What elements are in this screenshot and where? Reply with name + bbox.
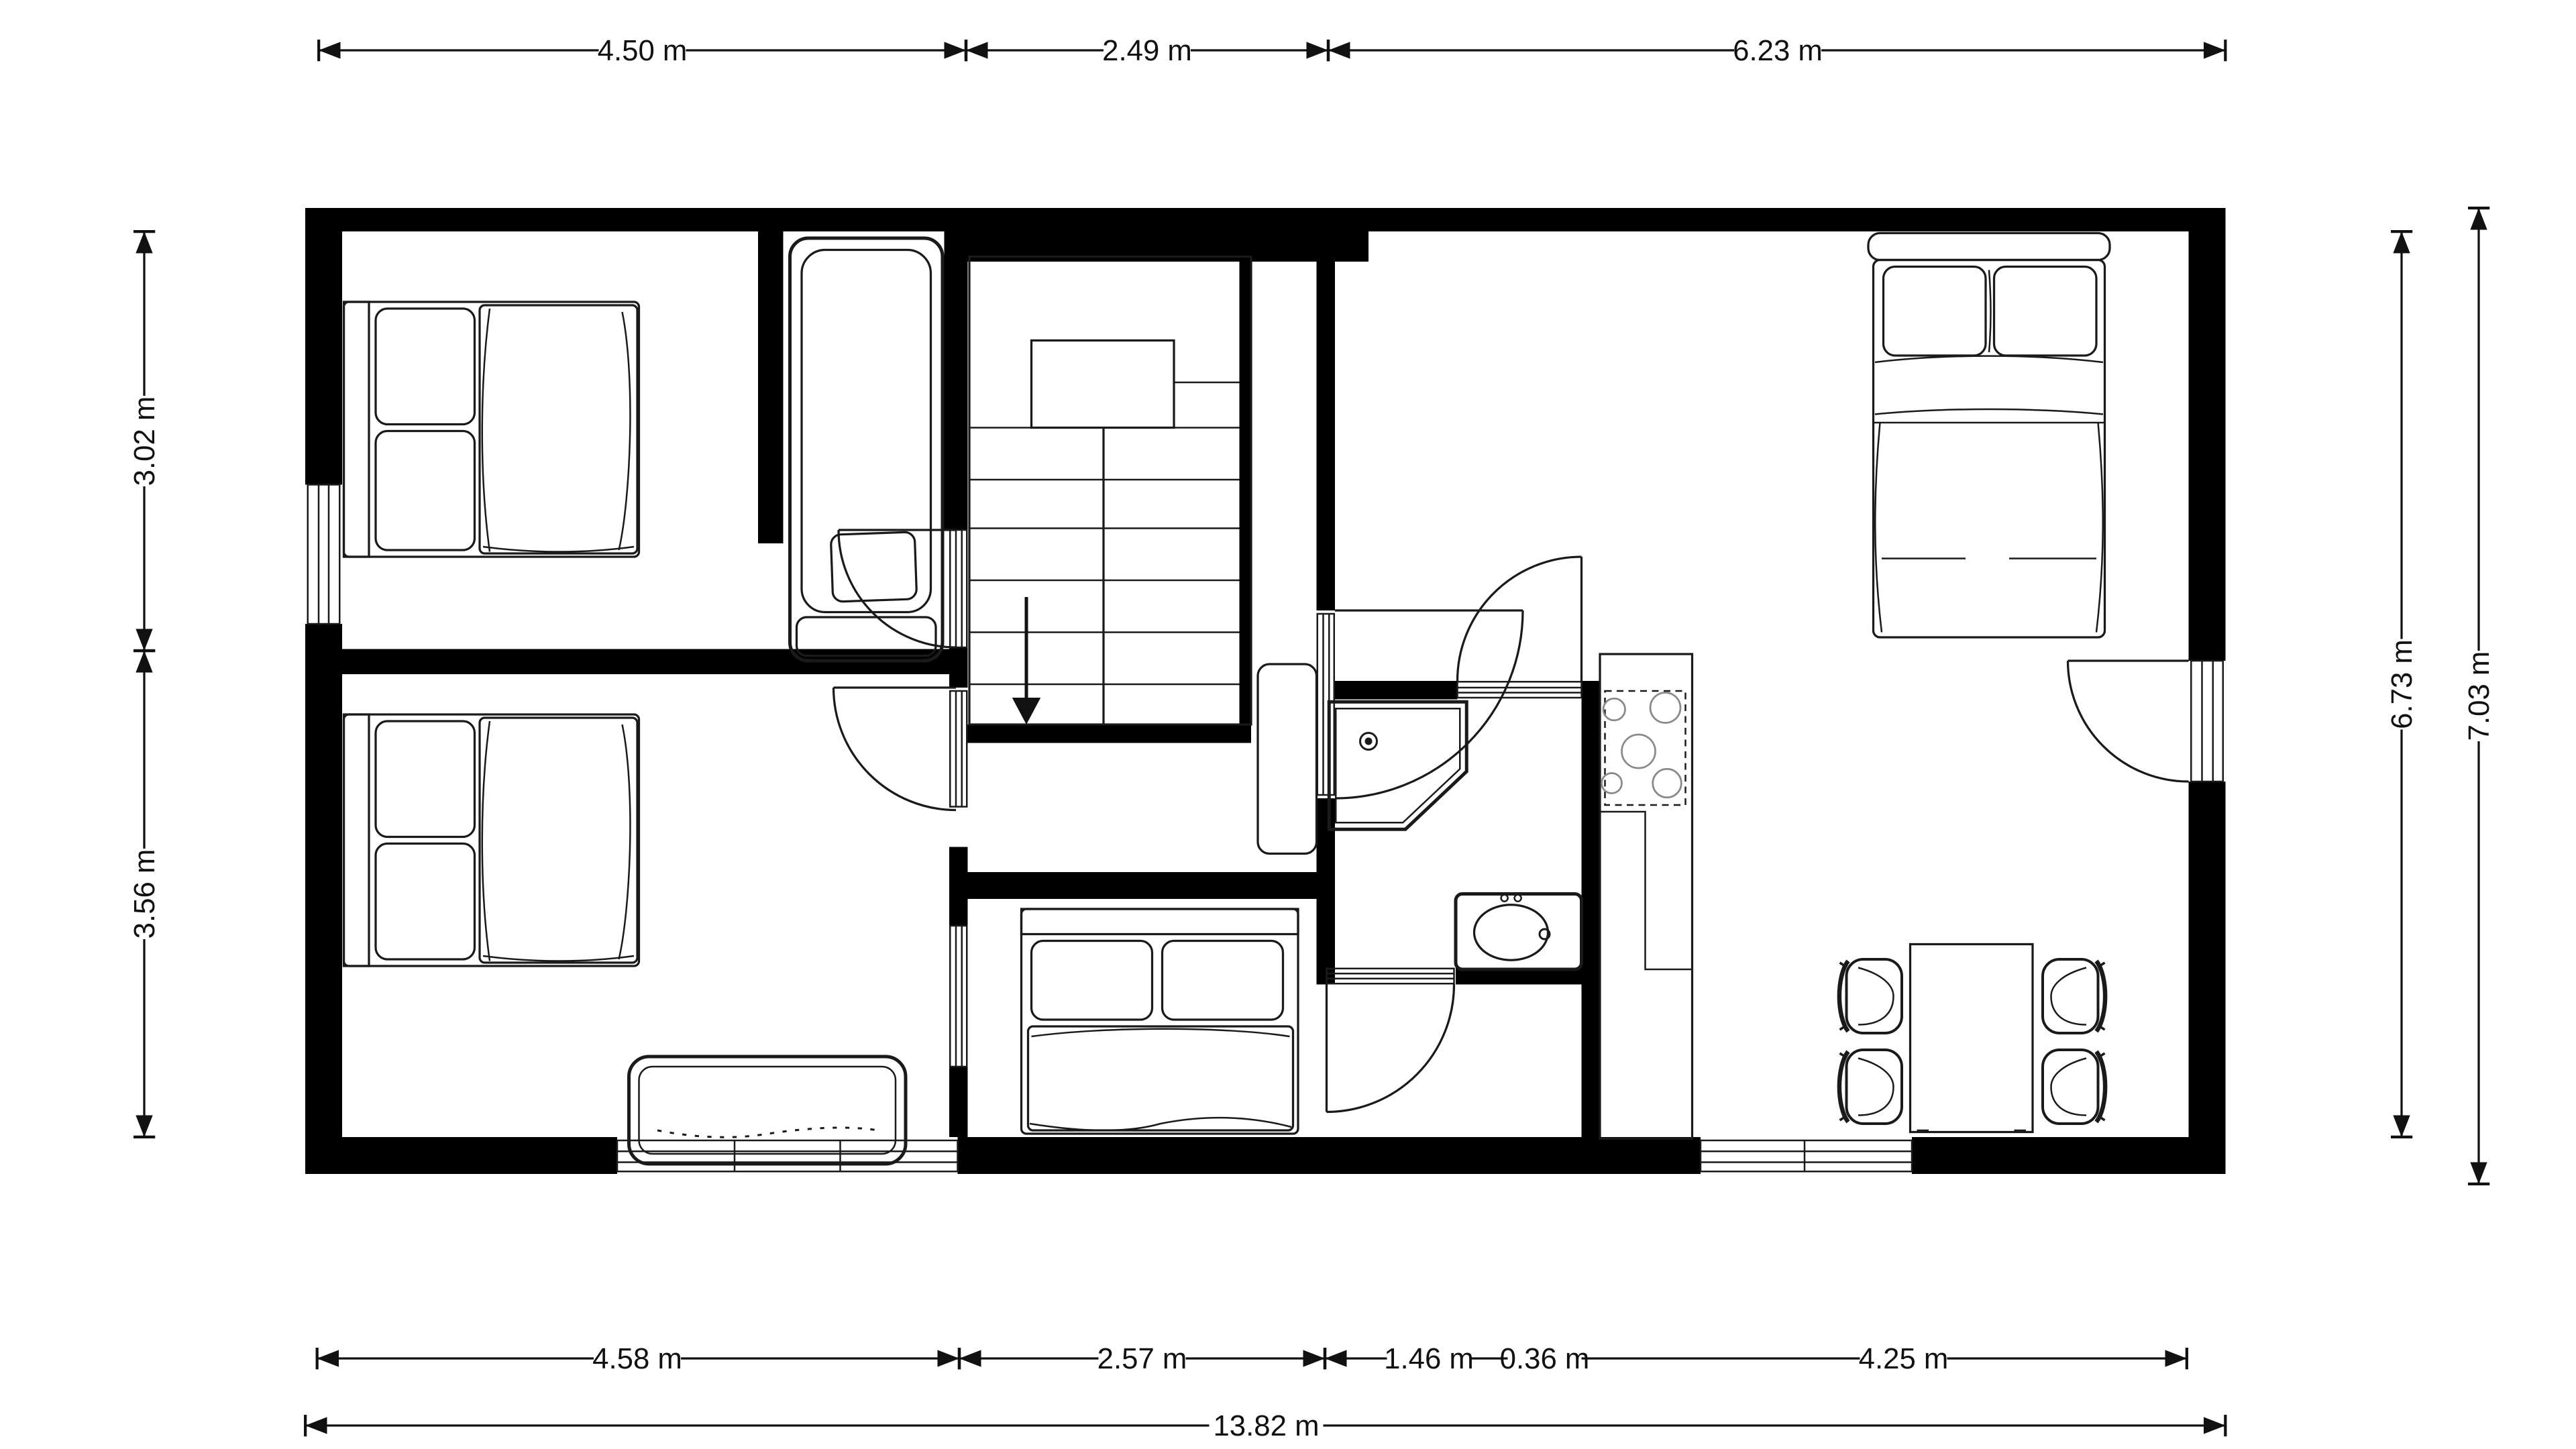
floor-plan-canvas: 4.50 m 2.49 m 6.23 m 3.02 m 3.56 m 6.73 … (0, 0, 2576, 1449)
wall-tubroom-right (945, 208, 968, 530)
bed-3 (1022, 909, 1299, 1134)
dim-left-1: 3.02 m (128, 396, 161, 486)
wall-bed3-left-upper (949, 899, 968, 926)
dim-overall-width: 13.82 m (1213, 1409, 1319, 1442)
dining-chairs (1839, 959, 2105, 1124)
chair-bottom-left (1839, 1050, 1902, 1124)
kitchen-counter (1600, 654, 1693, 1139)
dim-right-outer: 7.03 m (2463, 651, 2495, 741)
doors (834, 530, 2226, 1112)
wardrobe (1258, 664, 1317, 854)
windows (305, 485, 1912, 1175)
door-bedroom-2 (834, 688, 967, 810)
dim-right-inner: 6.73 m (2385, 639, 2418, 729)
wall-left-lower (305, 624, 342, 1174)
chair-top-right (2043, 959, 2105, 1033)
window-bottom-right (1701, 1137, 1912, 1174)
wall-bath-right (1582, 681, 1601, 1137)
wall-stair-bottom (968, 724, 1252, 743)
dim-top-2: 2.49 m (1102, 34, 1192, 67)
wall-bottom (305, 1137, 2226, 1174)
dim-bottom-4: 0.36 m (1500, 1342, 1590, 1375)
shower-drain-icon (1365, 738, 1373, 745)
wall-b-horizontal (968, 872, 1336, 899)
door-tub-room (839, 530, 967, 647)
wall-bath-top (1335, 681, 1458, 700)
dim-top-3: 6.23 m (1733, 34, 1823, 67)
wall-middle-lower (1317, 798, 1336, 985)
wall-block-b (949, 847, 968, 900)
dim-bottom-1: 4.58 m (592, 1342, 682, 1375)
washbasin (1456, 894, 1582, 970)
dining-table (1911, 945, 2033, 1132)
staircase (969, 257, 1251, 725)
door-bedroom-3-opening (950, 926, 967, 1067)
cooktop (1602, 691, 1686, 805)
bed-4-double (1868, 233, 2110, 638)
wall-top (305, 208, 2226, 231)
window-left (305, 485, 342, 625)
wall-right-lower (2189, 782, 2226, 1174)
chair-bottom-right (2043, 1050, 2105, 1124)
bed-2 (344, 714, 639, 966)
dim-bottom-3: 1.46 m (1384, 1342, 1474, 1375)
chair-top-left (1839, 959, 1902, 1033)
dim-bottom-2: 2.57 m (1097, 1342, 1187, 1375)
dim-top-1: 4.50 m (598, 34, 688, 67)
dim-bottom-5: 4.25 m (1859, 1342, 1949, 1375)
door-bathroom-bottom (1327, 969, 1454, 1112)
wall-stair-right (1240, 257, 1252, 725)
door-bathroom-top (1458, 557, 1582, 698)
wall-right-upper (2189, 208, 2226, 661)
corner-shower (1329, 702, 1466, 829)
door-hall-living (1318, 610, 1523, 798)
wall-left-upper (305, 208, 342, 485)
bathtub (790, 238, 943, 661)
wall-bed3-left-lower (949, 1067, 968, 1137)
stairs-down-arrow-icon (1012, 597, 1041, 724)
door-balcony (2068, 661, 2226, 782)
wall-bed1-partition (758, 208, 784, 543)
walls (305, 208, 2226, 1174)
floor-plan-drawing: 4.50 m 2.49 m 6.23 m 3.02 m 3.56 m 6.73 … (0, 0, 2576, 1449)
dim-left-2: 3.56 m (128, 849, 161, 939)
bed-1 (344, 302, 639, 557)
wall-middle-upper (1317, 208, 1336, 610)
